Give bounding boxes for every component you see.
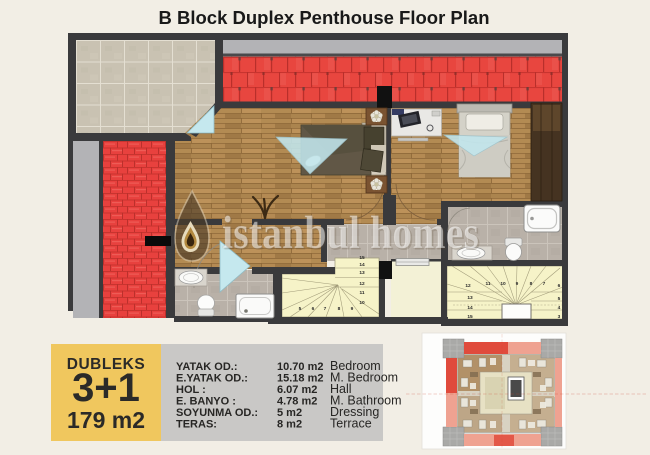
svg-text:E.YATAK OD.:: E.YATAK OD.: [176,373,248,385]
svg-text:6: 6 [312,306,315,312]
svg-text:5 m2: 5 m2 [277,407,302,419]
svg-text:5: 5 [299,306,302,312]
svg-text:istanbul homes: istanbul homes [222,207,479,259]
svg-text:10.70 m2: 10.70 m2 [277,361,323,373]
svg-text:7: 7 [543,281,546,287]
svg-text:5: 5 [558,296,561,302]
svg-text:15.18 m2: 15.18 m2 [277,373,323,385]
svg-text:YATAK OD.:: YATAK OD.: [176,361,238,373]
svg-text:14: 14 [359,262,365,268]
svg-text:9: 9 [516,281,519,287]
svg-text:10: 10 [359,300,365,306]
svg-text:14: 14 [467,305,473,311]
svg-text:SOYUNMA OD.:: SOYUNMA OD.: [176,407,258,419]
svg-text:10: 10 [500,281,506,287]
svg-text:11: 11 [359,290,364,296]
svg-text:11: 11 [485,281,490,287]
svg-text:4: 4 [558,305,561,311]
svg-text:Terrace: Terrace [330,417,372,431]
svg-text:6.07 m2: 6.07 m2 [277,384,317,396]
svg-text:6: 6 [558,283,561,289]
svg-text:7: 7 [324,306,327,312]
svg-text:E. BANYO :: E. BANYO : [176,396,236,408]
svg-text:8: 8 [338,306,341,312]
svg-text:B Block Duplex Penthouse Floor: B Block Duplex Penthouse Floor Plan [159,7,490,28]
svg-text:13: 13 [467,295,473,301]
svg-text:12: 12 [465,283,471,289]
svg-text:HOL :: HOL : [176,384,206,396]
svg-text:TERAS:: TERAS: [176,419,217,431]
svg-text:13: 13 [359,270,365,276]
svg-text:9: 9 [351,306,354,312]
svg-text:3+1: 3+1 [72,366,140,410]
svg-text:8: 8 [530,281,533,287]
svg-text:4.78 m2: 4.78 m2 [277,396,317,408]
svg-text:12: 12 [359,281,365,287]
svg-text:179 m2: 179 m2 [67,407,145,433]
svg-text:8 m2: 8 m2 [277,419,302,431]
